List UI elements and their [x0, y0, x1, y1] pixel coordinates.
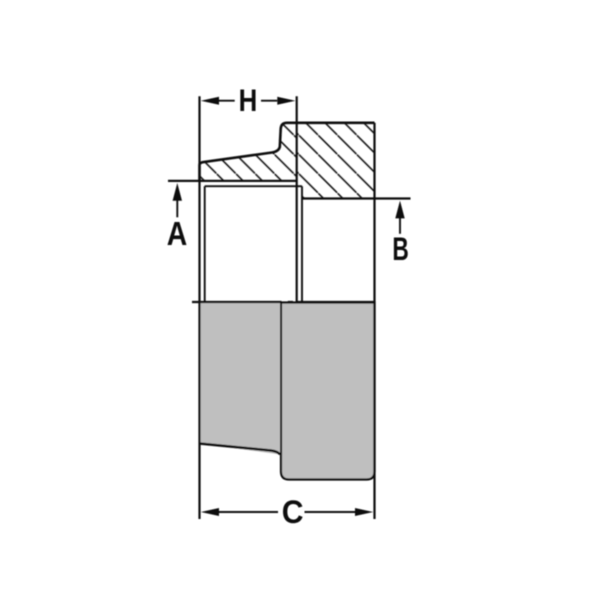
- svg-text:C: C: [282, 494, 304, 530]
- svg-text:B: B: [392, 231, 408, 267]
- svg-text:H: H: [239, 83, 258, 118]
- svg-text:A: A: [167, 215, 187, 253]
